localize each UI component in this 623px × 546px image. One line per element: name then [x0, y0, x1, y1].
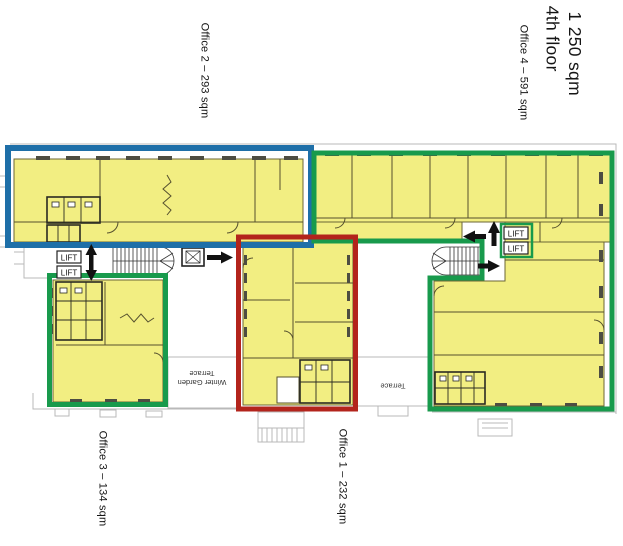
office2-rooms — [14, 159, 303, 242]
office1-white-room — [277, 377, 299, 403]
office-4-label: Office 4 – 591 sqm — [517, 25, 528, 121]
stairs-left — [113, 247, 174, 275]
floor-plan-page: LIFT LIFT LIFT LIFT Winter — [0, 0, 623, 546]
winter-garden-terrace-label: Winter Garden Terrace — [178, 369, 227, 387]
lift-label: LIFT — [508, 230, 525, 239]
terrace-label: Terrace — [380, 382, 405, 391]
page-title-area: 1 250 sqm — [565, 12, 583, 96]
office4-rooms — [316, 155, 611, 222]
office-2-label: Office 2 – 293 sqm — [198, 23, 209, 119]
office4-wing — [434, 242, 604, 406]
arrow-up — [488, 221, 500, 246]
lift-label: LIFT — [61, 254, 78, 263]
office-3-label: Office 3 – 134 sqm — [96, 431, 107, 527]
lift-box: LIFT — [57, 251, 81, 263]
office-1-label: Office 1 – 232 sqm — [336, 429, 347, 525]
lift-box: LIFT — [504, 242, 528, 254]
lift-label: LIFT — [61, 269, 78, 278]
stairs-right — [432, 247, 482, 275]
lift-box: LIFT — [504, 227, 528, 239]
winter-garden-line2: Terrace — [189, 369, 214, 378]
page-title-floor: 4th floor — [543, 6, 561, 72]
arrow-right — [207, 252, 233, 264]
winter-garden-line1: Winter Garden — [178, 378, 227, 387]
elevator-box — [182, 248, 204, 266]
lift-box: LIFT — [57, 266, 81, 278]
office3-rooms — [53, 280, 163, 402]
floor-plan: LIFT LIFT LIFT LIFT Winter — [0, 0, 623, 546]
lift-label: LIFT — [508, 245, 525, 254]
